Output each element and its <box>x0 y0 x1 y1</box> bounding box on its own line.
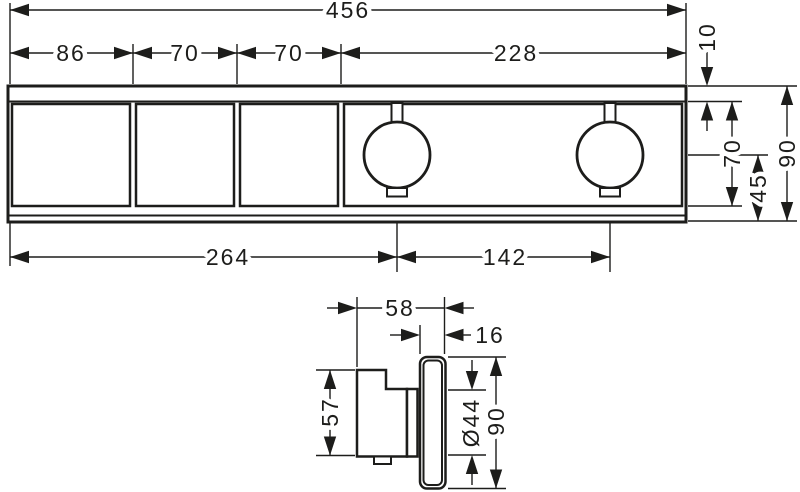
dim-label-segment-2: 70 <box>170 40 200 66</box>
dim-total-depth: 58 <box>327 295 474 367</box>
dim-arrow <box>591 251 610 263</box>
dim-total-width: 456 <box>10 0 686 84</box>
escutcheon-profile <box>420 357 446 489</box>
dim-arrow <box>781 202 793 221</box>
dim-arrow <box>490 357 502 376</box>
panel-cell-1 <box>12 104 130 206</box>
dim-label-total-width: 456 <box>326 0 370 23</box>
dim-arrow <box>324 370 336 389</box>
dim-arrow <box>378 251 397 263</box>
dim-escutcheon-protrusion: 16 <box>390 322 505 354</box>
valve-body-neck <box>407 389 418 457</box>
handle-right-top-tab <box>605 103 616 123</box>
technical-drawing-page: 456 86 70 70 228 <box>0 0 800 492</box>
panel-cell-3 <box>240 104 338 206</box>
dim-arrow <box>341 47 360 59</box>
dim-label-handle-diameter: Ø44 <box>458 398 484 447</box>
dimension-drawing: 456 86 70 70 228 <box>0 0 800 492</box>
dim-handle-diameter: Ø44 <box>448 360 486 485</box>
dim-arrow <box>701 67 713 86</box>
dim-label-escutcheon-height: 90 <box>483 406 509 436</box>
dim-arrow <box>10 47 29 59</box>
dim-label-segment-4: 228 <box>494 40 538 66</box>
dim-right-heights: 10 70 45 90 <box>688 22 800 221</box>
handle-left-top-tab <box>392 103 403 123</box>
dim-label-center-to-bottom: 45 <box>745 173 771 203</box>
dim-label-top-offset: 10 <box>694 22 720 52</box>
dim-label-escutcheon-protrusion: 16 <box>475 322 505 348</box>
dim-arrow <box>781 86 793 105</box>
dim-arrow <box>133 47 152 59</box>
dim-arrow <box>397 251 416 263</box>
valve-body-outline <box>357 370 407 457</box>
panel-cell-2 <box>136 104 234 206</box>
dim-label-segment-1: 86 <box>56 40 86 66</box>
dim-arrow <box>114 47 133 59</box>
dim-arrow <box>322 47 341 59</box>
dim-label-total-height: 90 <box>774 138 800 168</box>
dim-label-left-to-handle: 264 <box>206 244 250 270</box>
handle-left-knob <box>364 122 430 188</box>
dim-arrow <box>701 102 713 121</box>
dim-arrow <box>445 329 464 341</box>
dim-arrow <box>490 470 502 489</box>
dim-arrow <box>10 4 29 16</box>
valve-body <box>357 370 418 464</box>
handle-left-bottom-tab <box>387 188 407 197</box>
dim-arrow <box>10 251 29 263</box>
dim-segments: 86 70 70 228 <box>10 40 686 84</box>
dim-arrow <box>667 4 686 16</box>
dim-arrow <box>726 102 738 121</box>
dim-arrow <box>726 187 738 206</box>
handle-right-bottom-tab <box>600 188 620 197</box>
dim-arrow <box>466 455 478 474</box>
dim-label-total-depth: 58 <box>385 295 415 321</box>
dim-arrow <box>237 47 256 59</box>
handle-right-knob <box>577 122 643 188</box>
dim-arrow <box>466 371 478 390</box>
dim-arrow <box>752 155 764 174</box>
dim-label-segment-3: 70 <box>274 40 304 66</box>
dim-body-height: 57 <box>316 370 355 456</box>
dim-arrow <box>752 202 764 221</box>
side-view: 58 16 57 Ø44 <box>316 295 509 489</box>
dim-arrow <box>338 302 357 314</box>
valve-body-foot <box>374 457 391 465</box>
dim-label-inner-height: 70 <box>719 138 745 168</box>
dim-arrow <box>667 47 686 59</box>
dim-arrow <box>218 47 237 59</box>
front-view: 456 86 70 70 228 <box>8 0 800 272</box>
dim-arrow <box>324 437 336 456</box>
dim-label-body-height: 57 <box>317 397 343 427</box>
dim-bottom-spans: 264 142 <box>10 223 610 272</box>
dim-arrow <box>401 329 420 341</box>
dim-label-handle-spacing: 142 <box>483 244 527 270</box>
dim-arrow <box>445 302 464 314</box>
